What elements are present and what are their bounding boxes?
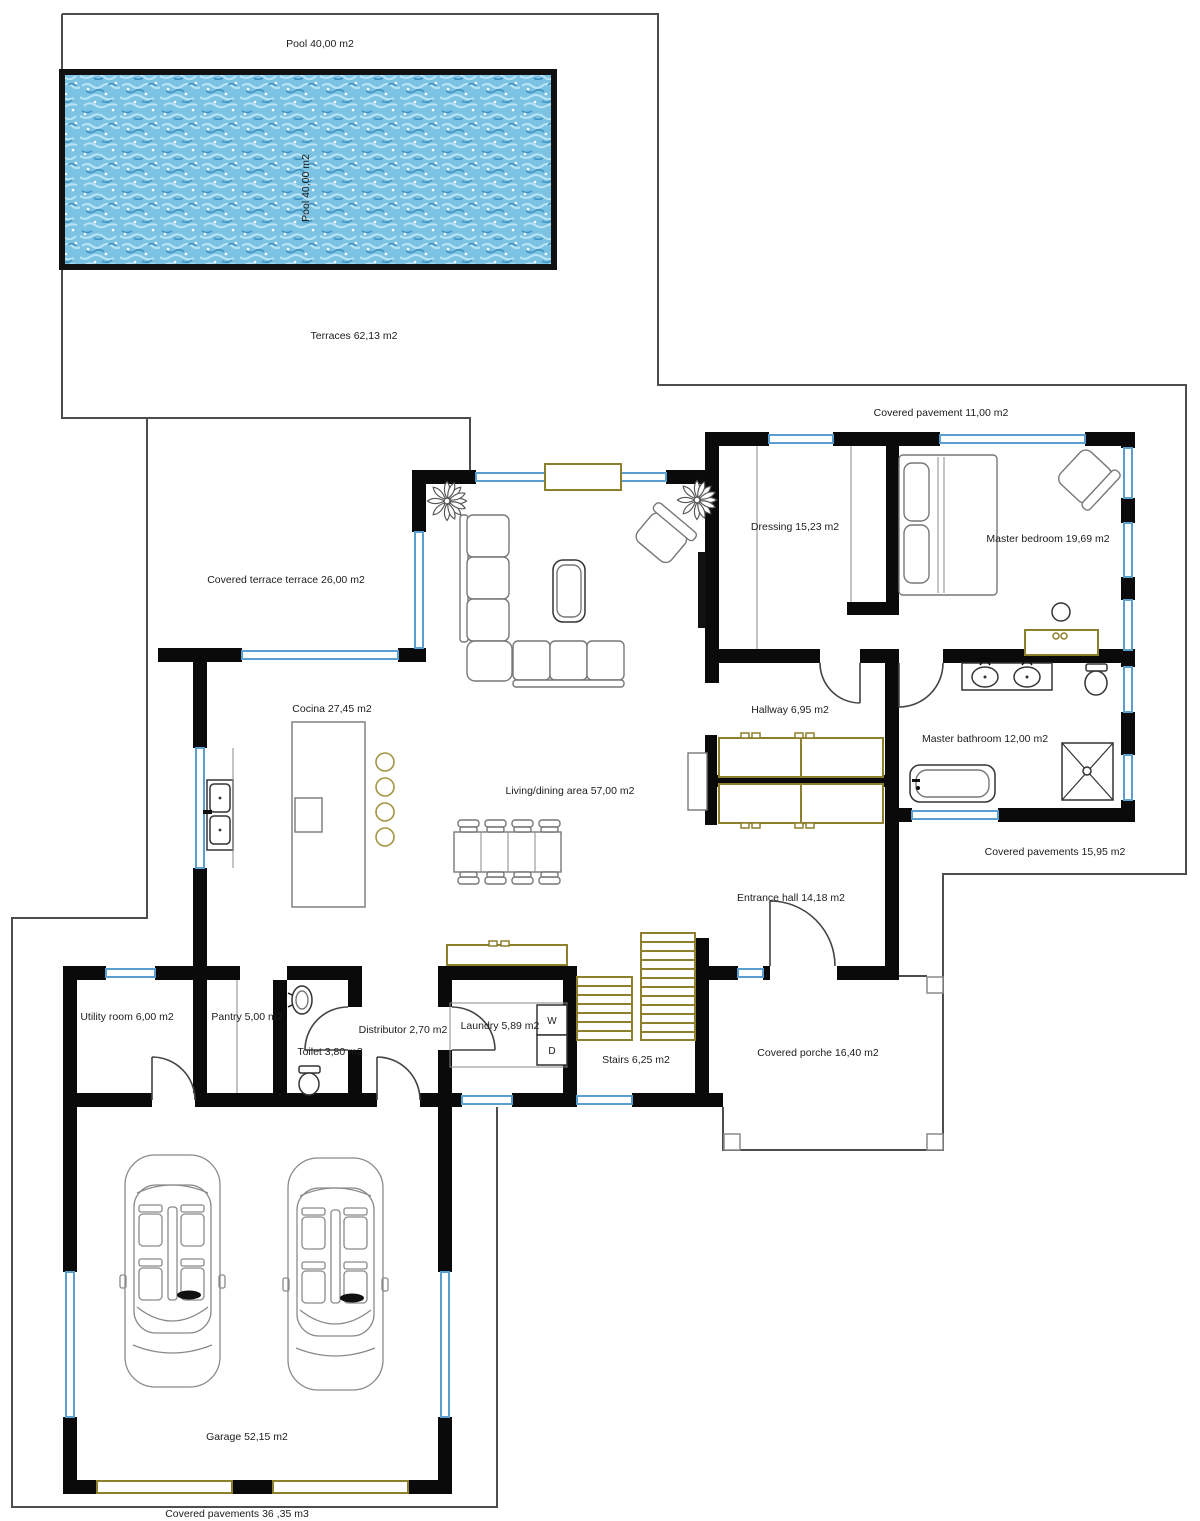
gold-elements [97, 464, 1098, 1493]
label-covered-pavements-right: Covered pavements 15,95 m2 [985, 846, 1126, 858]
dining-set [454, 820, 561, 884]
car [120, 1155, 225, 1387]
entrance-door [770, 901, 835, 966]
stairs-flight-right [641, 933, 695, 1040]
garage-door-interior [377, 1057, 420, 1100]
label-pool-inner: Pool 40,00 m2 [300, 154, 312, 222]
label-covered-porche: Covered porche 16,40 m2 [757, 1047, 879, 1059]
bathroom-door [899, 663, 943, 707]
bedroom-vanity [1025, 630, 1098, 655]
window [577, 1096, 632, 1104]
bathroom-toilet [1085, 664, 1107, 695]
utility-door [152, 1057, 195, 1100]
porch-pillar [927, 1134, 943, 1150]
tv [698, 552, 706, 628]
vanity-stool [1052, 603, 1070, 621]
label-utility-room: Utility room 6,00 m2 [80, 1011, 174, 1023]
bar-stool [376, 828, 394, 846]
label-laundry: Laundry 5,89 m2 [461, 1020, 540, 1032]
window [940, 435, 1085, 443]
window [196, 748, 204, 868]
label-master-bathroom: Master bathroom 12,00 m2 [922, 733, 1048, 745]
stairs-flight-left [577, 977, 632, 1040]
label-covered-terrace: Covered terrace terrace 26,00 m2 [207, 574, 365, 586]
porch-pillars [724, 977, 943, 1150]
window [1124, 600, 1132, 650]
window [441, 1272, 449, 1417]
bathroom-vanity [962, 661, 1052, 690]
label-living-dining: Living/dining area 57,00 m2 [505, 785, 634, 797]
window [769, 435, 833, 443]
label-dryer: D [548, 1046, 555, 1057]
label-entrance-hall: Entrance hall 14,18 m2 [737, 892, 845, 904]
floorplan-page: Pool 40,00 m2 Pool 40,00 m2 Terraces 62,… [0, 0, 1200, 1521]
label-distributor: Distributor 2,70 m2 [359, 1024, 448, 1036]
plant [677, 480, 716, 519]
plant [427, 481, 466, 520]
porch-pillar [724, 1134, 740, 1150]
toilet-room-sink [288, 986, 312, 1014]
label-cocina: Cocina 27,45 m2 [292, 703, 372, 715]
kitchen-sink [203, 780, 233, 850]
floorplan-svg: Pool 40,00 m2 Pool 40,00 m2 Terraces 62,… [0, 0, 1200, 1521]
window [1124, 755, 1132, 800]
toilet-door [305, 1007, 348, 1050]
bar-stool [376, 803, 394, 821]
side-table [688, 753, 707, 810]
window [476, 473, 545, 481]
laundry-closet [447, 941, 567, 965]
window [66, 1272, 74, 1417]
window [242, 651, 398, 659]
label-hallway: Hallway 6,95 m2 [751, 704, 829, 716]
porch-pillar [927, 977, 943, 993]
window [462, 1096, 512, 1104]
hallway-door [820, 663, 860, 703]
label-stairs: Stairs 6,25 m2 [602, 1054, 670, 1066]
bedroom-armchair [1054, 444, 1122, 512]
garage-door [97, 1481, 232, 1493]
window [106, 969, 155, 977]
dressing-closet-lines [757, 446, 851, 649]
label-covered-pavements-bottom: Covered pavements 36 ,35 m3 [165, 1508, 309, 1520]
kitchen-island [292, 722, 365, 907]
label-garage: Garage 52,15 m2 [206, 1431, 288, 1443]
label-dressing: Dressing 15,23 m2 [751, 521, 839, 533]
garage-door [273, 1481, 408, 1493]
label-pantry: Pantry 5,00 m2 [211, 1011, 282, 1023]
label-pool: Pool 40,00 m2 [286, 38, 354, 50]
bed [899, 455, 997, 595]
toilet-room-wc [299, 1066, 320, 1095]
sofa [460, 515, 624, 687]
window [912, 811, 998, 819]
car [283, 1158, 388, 1390]
shower [1062, 743, 1113, 800]
label-terraces: Terraces 62,13 m2 [311, 330, 398, 342]
window [415, 532, 423, 648]
window-bay [545, 464, 621, 490]
coffee-table [553, 560, 585, 622]
bar-stool [376, 778, 394, 796]
window [1124, 523, 1132, 577]
bar-stool [376, 753, 394, 771]
label-washer: W [547, 1016, 557, 1027]
laundry-counter [450, 1003, 567, 1067]
window [1124, 448, 1132, 498]
window [1124, 667, 1132, 712]
label-covered-pavement: Covered pavement 11,00 m2 [874, 407, 1009, 419]
window [738, 969, 763, 977]
label-master-bedroom: Master bedroom 19,69 m2 [986, 533, 1109, 545]
bathtub [910, 765, 995, 802]
window [621, 473, 666, 481]
label-toilet: Toilet 3,80 m2 [297, 1046, 363, 1058]
